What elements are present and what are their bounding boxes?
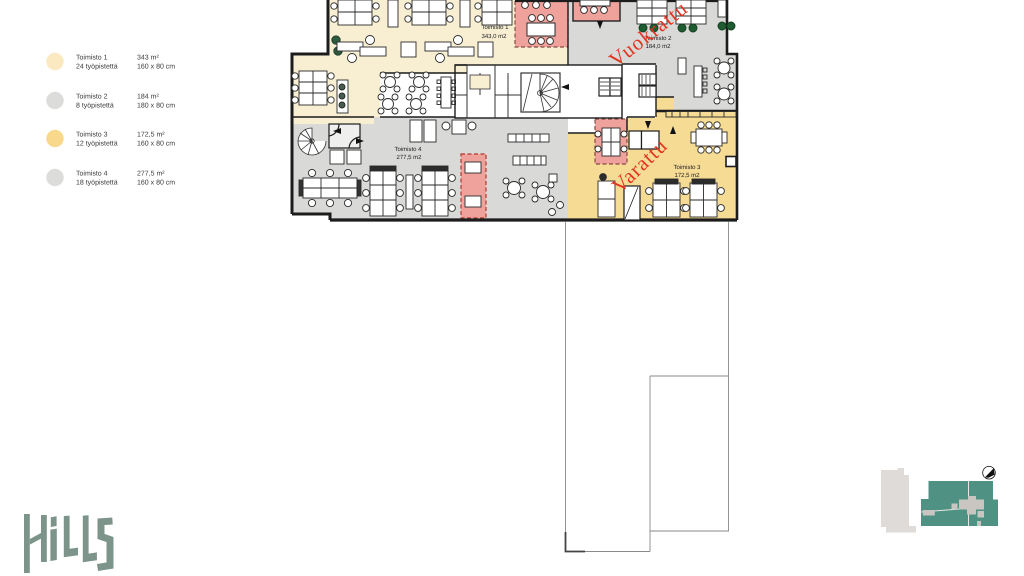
svg-text:277,5 m²: 277,5 m² bbox=[137, 171, 165, 178]
svg-text:Toimisto 4: Toimisto 4 bbox=[394, 146, 422, 153]
svg-text:172,5 m2: 172,5 m2 bbox=[674, 172, 700, 179]
svg-text:160 x 80 cm: 160 x 80 cm bbox=[137, 141, 175, 148]
svg-text:24 työpistettä: 24 työpistettä bbox=[76, 63, 118, 71]
svg-text:Toimisto 1: Toimisto 1 bbox=[481, 24, 509, 31]
svg-text:343 m²: 343 m² bbox=[137, 55, 159, 62]
svg-text:180 x 80 cm: 180 x 80 cm bbox=[137, 103, 175, 110]
svg-text:277,5 m2: 277,5 m2 bbox=[396, 154, 422, 161]
svg-text:18 työpistettä: 18 työpistettä bbox=[76, 179, 118, 187]
svg-text:Toimisto 1: Toimisto 1 bbox=[76, 54, 108, 62]
svg-text:Toimisto 3: Toimisto 3 bbox=[673, 164, 701, 171]
svg-text:Toimisto 3: Toimisto 3 bbox=[76, 131, 108, 139]
svg-text:8 työpistettä: 8 työpistettä bbox=[76, 102, 114, 110]
svg-text:Toimisto 2: Toimisto 2 bbox=[76, 93, 108, 101]
svg-text:Toimisto 4: Toimisto 4 bbox=[76, 170, 108, 178]
svg-text:160 x 80 cm: 160 x 80 cm bbox=[137, 64, 175, 71]
svg-text:12 työpistettä: 12 työpistettä bbox=[76, 140, 118, 148]
svg-text:184 m²: 184 m² bbox=[137, 94, 159, 101]
svg-text:343,0 m2: 343,0 m2 bbox=[481, 33, 507, 40]
svg-text:172,5 m²: 172,5 m² bbox=[137, 132, 165, 139]
svg-text:160 x 80 cm: 160 x 80 cm bbox=[137, 180, 175, 187]
